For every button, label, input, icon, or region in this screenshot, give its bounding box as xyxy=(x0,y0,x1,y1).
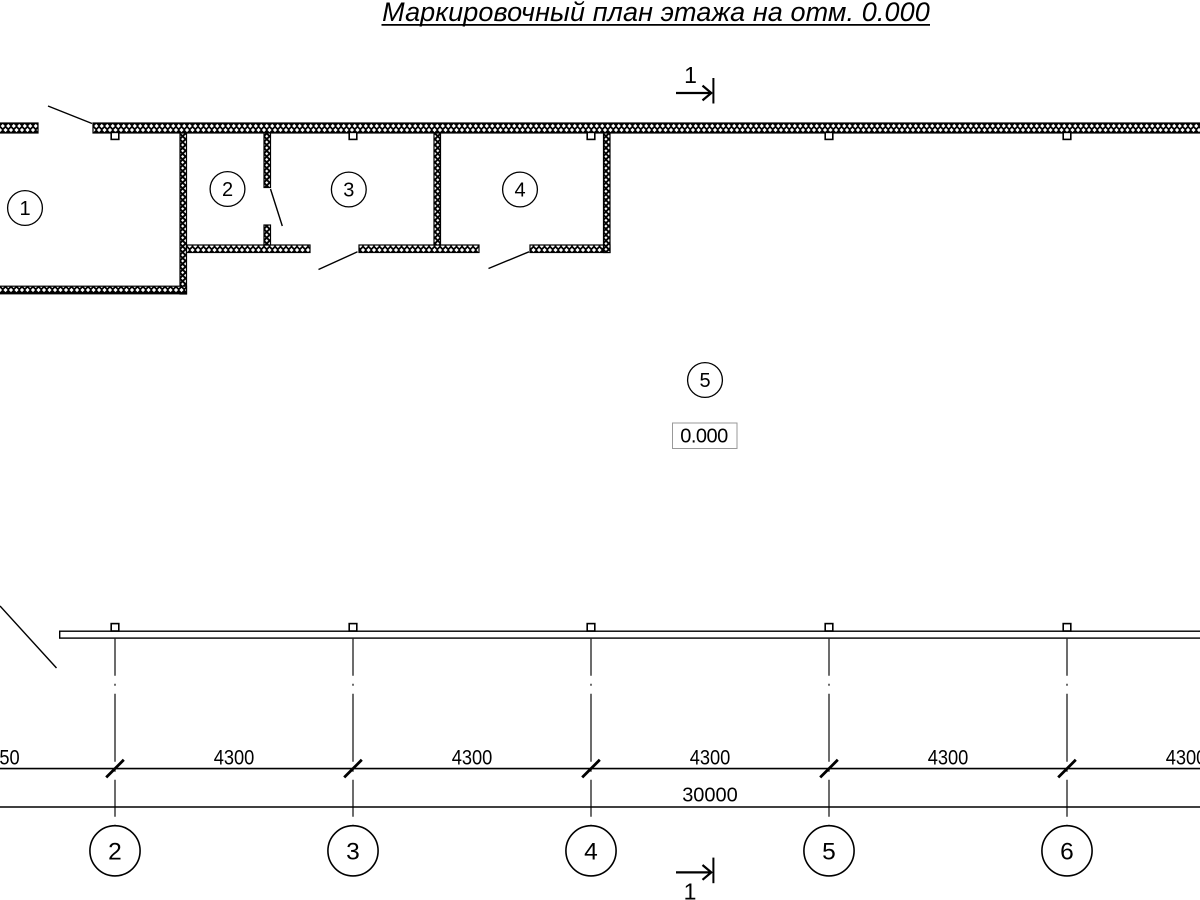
svg-text:4300: 4300 xyxy=(214,746,255,770)
svg-text:2: 2 xyxy=(222,179,233,201)
svg-text:4: 4 xyxy=(514,180,525,202)
svg-text:4300: 4300 xyxy=(452,746,493,770)
svg-text:4: 4 xyxy=(584,839,598,866)
svg-text:4300: 4300 xyxy=(928,746,969,770)
svg-text:1: 1 xyxy=(19,198,30,220)
svg-text:3: 3 xyxy=(343,180,354,202)
svg-text:2: 2 xyxy=(108,839,122,866)
svg-text:4300: 4300 xyxy=(1166,746,1200,770)
svg-text:4300: 4300 xyxy=(690,746,731,770)
svg-text:1150: 1150 xyxy=(0,746,20,770)
svg-text:5: 5 xyxy=(822,839,836,866)
svg-text:1: 1 xyxy=(684,879,697,900)
svg-text:3: 3 xyxy=(346,839,360,866)
svg-text:1: 1 xyxy=(684,62,697,88)
svg-text:Маркировочный план этажа на от: Маркировочный план этажа на отм. 0.000 xyxy=(382,0,930,27)
svg-text:0.000: 0.000 xyxy=(680,426,728,448)
svg-text:5: 5 xyxy=(699,370,710,392)
svg-text:6: 6 xyxy=(1060,839,1074,866)
svg-text:30000: 30000 xyxy=(682,784,738,806)
